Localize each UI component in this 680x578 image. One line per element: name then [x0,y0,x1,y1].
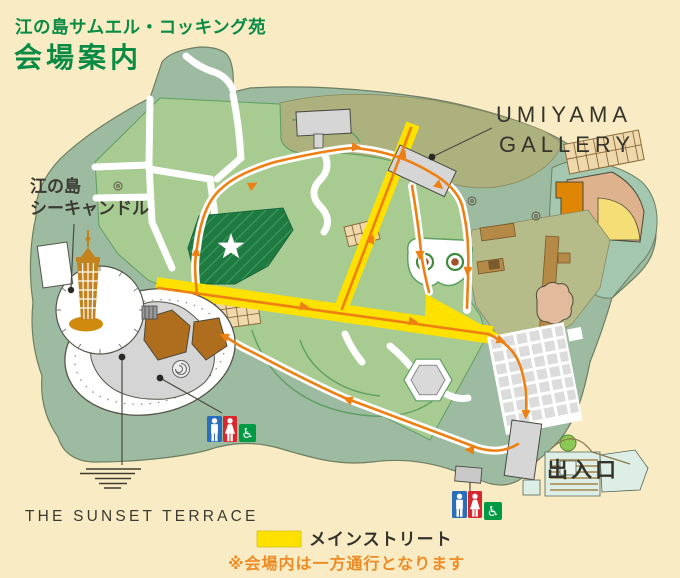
one-way-note: ※会場内は一方通行となります [228,554,465,573]
legend-main-street-swatch [257,531,301,547]
header-subtitle: 江の島サムエル・コッキング苑 [15,17,266,37]
restroom-building-south [455,466,482,483]
wheelchair-icon: ♿ [487,503,500,519]
annex-building [37,242,73,288]
legend-main-street-label: メインストリート [309,530,453,549]
exit-side-building [523,480,540,495]
stage-building [536,282,573,324]
sea-candle-label-line1: 江の島 [30,176,81,196]
sea-candle-label-line2: シーキャンドル [30,199,149,218]
wheelchair-icon: ♿ [241,425,254,441]
sunset-terrace-label: THE SUNSET TERRACE [25,508,259,525]
exit-label: 出入口 [547,459,619,482]
tree-circle [560,435,576,451]
vent-structure [142,306,157,319]
page-title: 会場案内 [14,41,142,73]
venue-map-illustration: ♿ ♿ UMIYAMA GALLERY 江の島 シーキャンドル THE SUNS… [0,0,680,578]
umiyama-gallery-label-line1: UMIYAMA [496,102,632,127]
spiral-stair-icon [173,361,190,378]
umiyama-gallery-label-line2: GALLERY [499,132,635,157]
